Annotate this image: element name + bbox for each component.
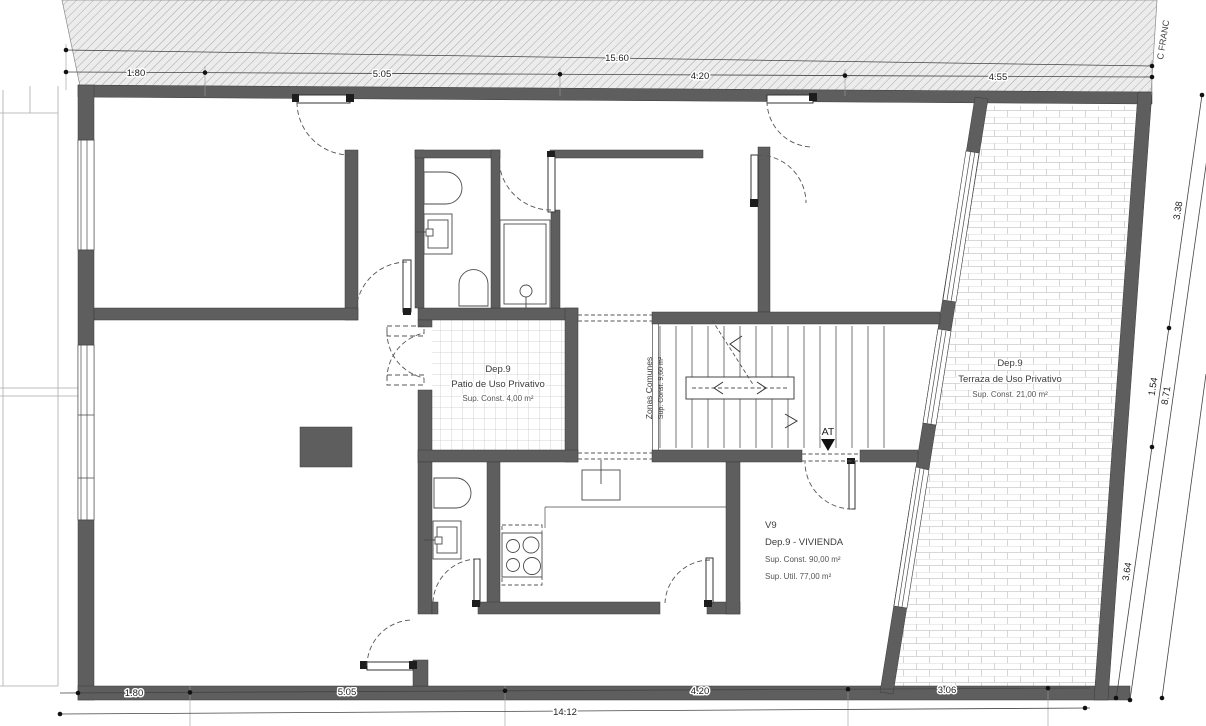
neighbour-outline (0, 86, 78, 686)
kitchen-counter-line (545, 507, 726, 528)
vivienda-name: Dep.9 - VIVIENDA (765, 537, 844, 548)
zonas-comunes-area: Sup. Const. 9,60 m² (658, 356, 665, 419)
toilet-icon (459, 270, 488, 306)
dim-top-overall: 15.60 (605, 53, 629, 64)
dim-bottom-seg-4: 3.06 (938, 685, 957, 696)
counter-edge (502, 525, 542, 533)
vivienda-code: V9 (765, 520, 777, 531)
dim-right-seg-2: 1.54 (1147, 377, 1161, 397)
door-swing-arc (297, 102, 350, 155)
street-name-label: C FRANC (1155, 19, 1171, 61)
patio-name: Patio de Uso Privativo (451, 379, 544, 390)
patio-id: Dep.9 (485, 364, 510, 375)
dim-top-seg-3: 4.20 (691, 71, 710, 82)
dim-bottom-seg-1: 1.80 (125, 688, 144, 699)
stair-arrow-down-icon (785, 414, 797, 428)
terraza-area: Sup. Const. 21,00 m² (972, 390, 1048, 399)
floor-plan-page: AT Dep.9 Patio de Uso Privativo Sup. Con… (0, 0, 1206, 726)
dim-top-seg-4: 4.55 (989, 72, 1008, 83)
vivienda-area-const: Sup. Const. 90,00 m² (765, 555, 841, 564)
shower-drain-icon (520, 285, 532, 297)
dim-top-seg-1: 1.80 (127, 68, 146, 79)
dim-top-seg-2: 5.05 (373, 69, 392, 80)
dim-right-overall: 8.71 (1160, 386, 1174, 406)
access-marker: AT (821, 426, 835, 451)
bathroom-top-fixtures (415, 172, 550, 308)
window-icon (78, 140, 94, 250)
dim-right-seg-3: 3.64 (1121, 562, 1135, 582)
terraza-name: Terraza de Uso Privativo (958, 374, 1061, 385)
patio-area: Sup. Const. 4,00 m² (462, 394, 533, 403)
zonas-comunes-name: Zonas Comunes (644, 357, 654, 419)
window-icon (78, 345, 94, 520)
dim-right-seg-1: 3.38 (1172, 201, 1186, 221)
vivienda-area-util: Sup. Util. 77,00 m² (765, 572, 832, 581)
toilet-icon (434, 478, 471, 508)
terraza-id: Dep.9 (997, 358, 1022, 369)
dim-bottom-seg-3: 4.20 (691, 686, 710, 697)
stair-direction-line (712, 320, 754, 386)
bidet-icon (424, 172, 462, 204)
dim-bottom-seg-2: 5.05 (338, 687, 357, 698)
kitchen-fixtures (502, 460, 726, 585)
access-triangle-icon (821, 439, 835, 451)
dim-bottom-overall: 14.12 (553, 707, 577, 718)
floor-plan-svg: AT Dep.9 Patio de Uso Privativo Sup. Con… (0, 0, 1206, 726)
staircase (660, 320, 884, 448)
door-leaf (297, 95, 350, 103)
access-label: AT (822, 426, 835, 438)
